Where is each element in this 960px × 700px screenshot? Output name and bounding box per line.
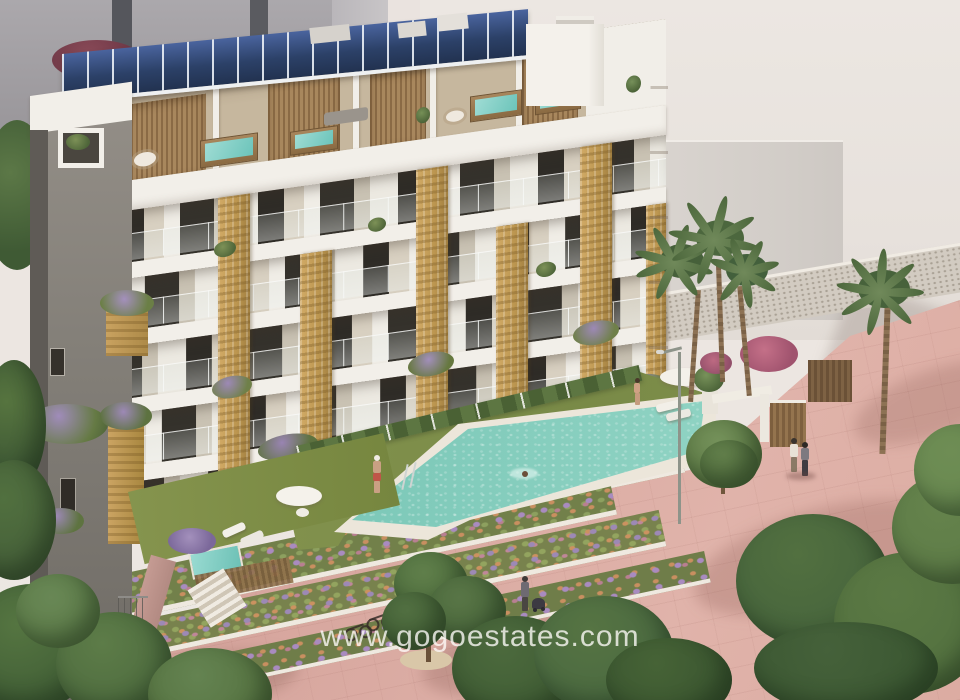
palm-trunk (716, 262, 725, 382)
palm-tree (836, 240, 946, 460)
palm-trunk (688, 290, 701, 402)
person-torso (373, 461, 381, 473)
garden-table (296, 508, 309, 517)
person-legs (522, 597, 528, 611)
penthouse-corner-block (526, 24, 604, 106)
wood-slat-wall (370, 67, 426, 147)
stone-pier (218, 193, 250, 495)
jacuzzi-water (205, 137, 253, 162)
palm-trunk (879, 306, 890, 454)
roof-vent-box (437, 12, 469, 31)
corner-pier-plants (100, 402, 152, 430)
person-torso (801, 448, 809, 460)
person-shadow (786, 472, 816, 480)
jacuzzi-water (475, 94, 517, 116)
tower-opening-plant (66, 134, 90, 150)
rooftop-jacuzzi (470, 89, 522, 122)
person-shorts (373, 473, 381, 481)
person-with-stroller (519, 576, 549, 616)
stroller-wheel (541, 607, 545, 611)
person-legs (791, 457, 797, 472)
tree (700, 440, 758, 488)
wood-slat-wall (126, 94, 206, 181)
watermark-text: www.gogoestates.com (0, 620, 960, 654)
terrace-plant (416, 106, 430, 124)
person-legs (374, 481, 380, 493)
person-walking-lawn (370, 455, 384, 493)
terrace-dining-table (446, 109, 464, 123)
palm-tree-cluster (630, 200, 810, 410)
person-torso (790, 444, 798, 457)
scene-render: www.gogoestates.com (0, 0, 960, 700)
person-torso (521, 582, 529, 597)
tower-window (50, 348, 65, 376)
stroller-wheel (533, 608, 537, 612)
jacuzzi-water (295, 130, 333, 149)
roof-vent-box (397, 21, 426, 39)
lavender-bush (168, 528, 216, 554)
stone-planter-plants (100, 290, 154, 316)
garden-parasol (276, 486, 322, 506)
swimmer (522, 471, 528, 477)
